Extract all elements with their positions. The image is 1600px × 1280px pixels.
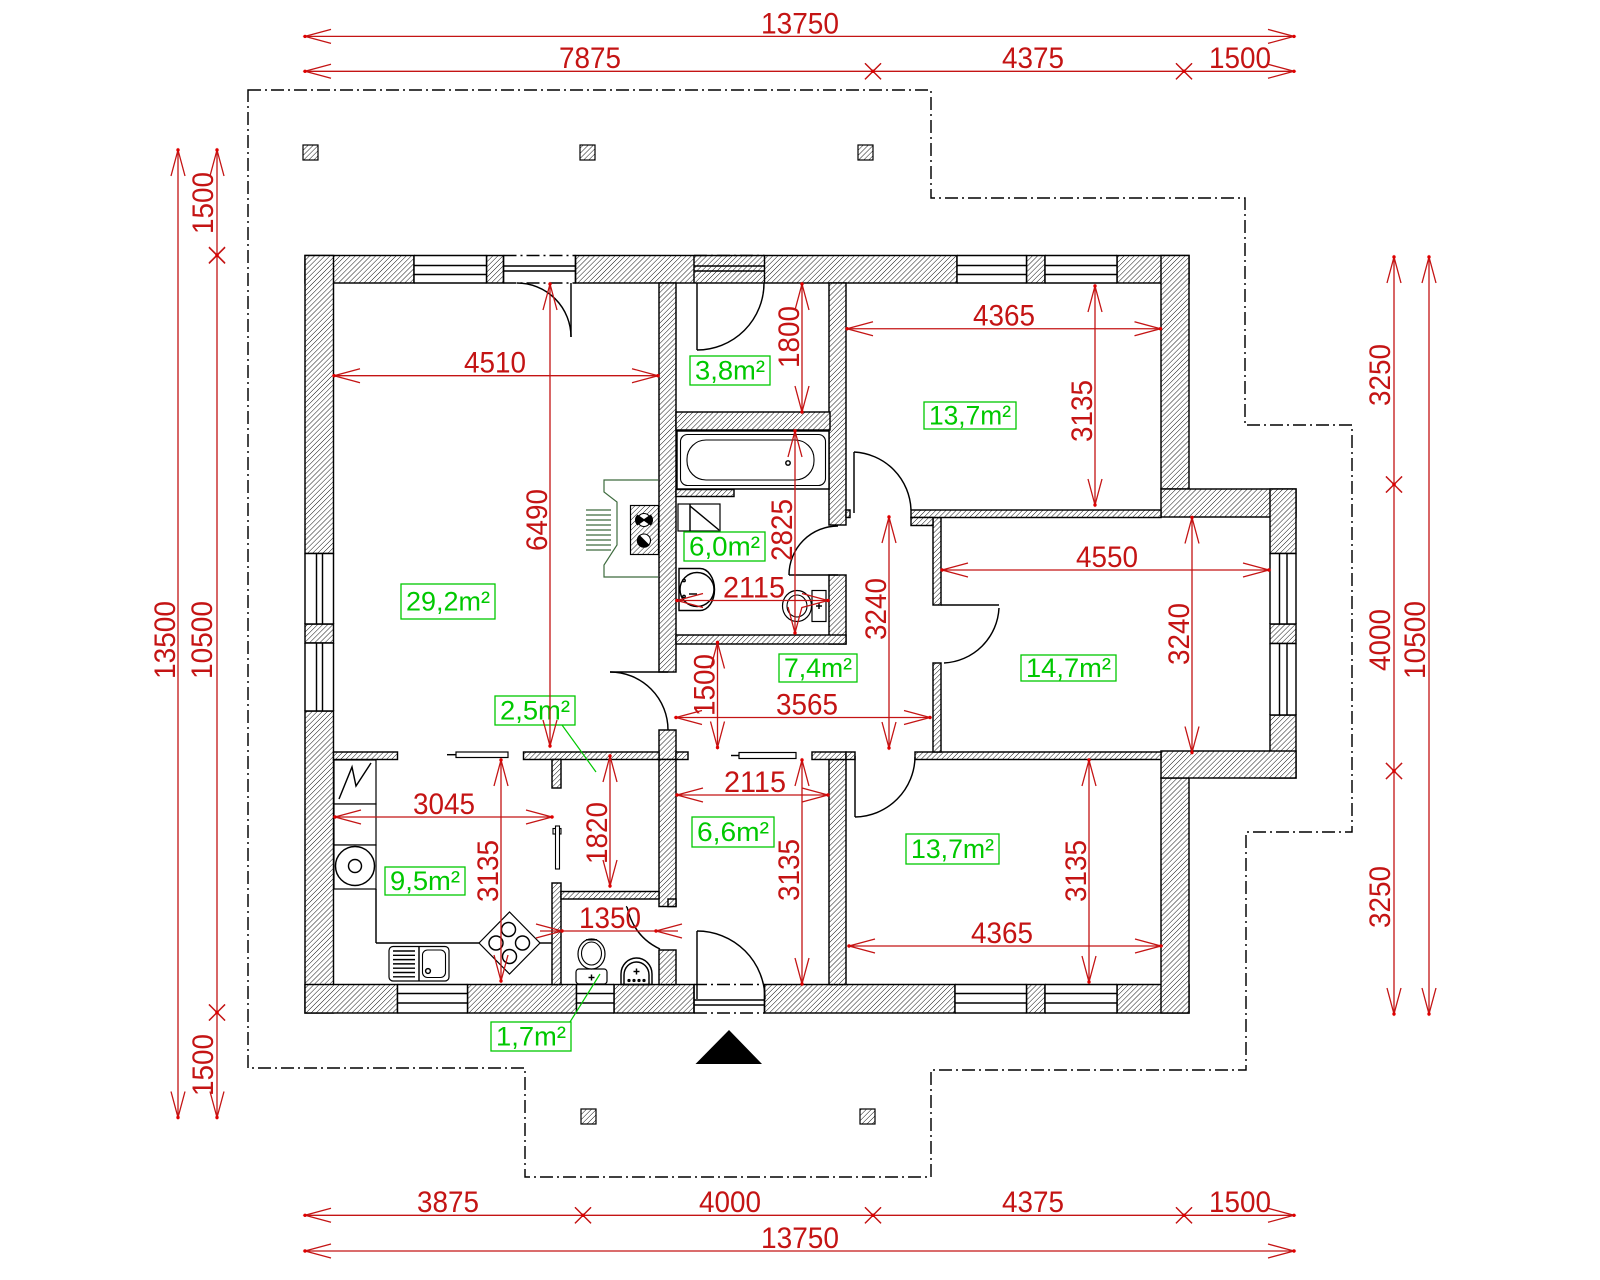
svg-text:13500: 13500 [149, 601, 182, 679]
svg-text:13750: 13750 [761, 7, 839, 40]
svg-text:13750: 13750 [761, 1222, 839, 1255]
svg-text:1820: 1820 [581, 802, 614, 864]
svg-text:2825: 2825 [766, 499, 799, 561]
svg-text:4365: 4365 [973, 300, 1035, 333]
svg-text:3135: 3135 [472, 840, 505, 902]
svg-text:4550: 4550 [1076, 541, 1138, 574]
svg-text:2,5m²: 2,5m² [500, 696, 570, 726]
svg-text:6,6m²: 6,6m² [697, 817, 769, 847]
svg-text:1500: 1500 [1209, 42, 1271, 75]
svg-text:10500: 10500 [186, 601, 219, 679]
svg-text:3,8m²: 3,8m² [695, 356, 765, 386]
svg-text:1,7m²: 1,7m² [496, 1022, 566, 1052]
svg-text:7875: 7875 [559, 42, 621, 75]
svg-text:4375: 4375 [1002, 42, 1064, 75]
svg-text:4365: 4365 [971, 917, 1033, 950]
svg-text:3240: 3240 [860, 578, 893, 640]
svg-text:3565: 3565 [776, 689, 838, 722]
svg-text:14,7m²: 14,7m² [1026, 653, 1111, 683]
svg-text:1500: 1500 [187, 172, 220, 234]
svg-text:1500: 1500 [1209, 1186, 1271, 1219]
svg-text:3250: 3250 [1364, 866, 1397, 928]
svg-text:1350: 1350 [579, 902, 641, 935]
svg-text:4375: 4375 [1002, 1186, 1064, 1219]
svg-text:13,7m²: 13,7m² [929, 401, 1011, 431]
svg-text:1500: 1500 [689, 654, 722, 716]
svg-text:4000: 4000 [699, 1186, 761, 1219]
svg-text:3240: 3240 [1163, 603, 1196, 665]
svg-text:6490: 6490 [521, 489, 554, 551]
svg-text:13,7m²: 13,7m² [911, 834, 994, 864]
svg-text:9,5m²: 9,5m² [390, 866, 460, 896]
svg-text:4000: 4000 [1364, 609, 1397, 671]
svg-text:29,2m²: 29,2m² [406, 587, 490, 617]
svg-text:4510: 4510 [464, 347, 526, 380]
svg-text:1800: 1800 [773, 306, 806, 368]
svg-text:7,4m²: 7,4m² [784, 653, 852, 683]
svg-text:2115: 2115 [723, 572, 785, 605]
svg-text:6,0m²: 6,0m² [689, 532, 760, 562]
svg-text:3135: 3135 [1060, 840, 1093, 902]
svg-text:3135: 3135 [1066, 380, 1099, 442]
svg-text:2115: 2115 [724, 766, 786, 799]
svg-text:1500: 1500 [187, 1034, 220, 1096]
svg-text:10500: 10500 [1399, 601, 1432, 679]
svg-text:3875: 3875 [417, 1186, 479, 1219]
svg-text:3045: 3045 [413, 788, 475, 821]
svg-text:3250: 3250 [1364, 344, 1397, 406]
svg-text:3135: 3135 [773, 839, 806, 901]
